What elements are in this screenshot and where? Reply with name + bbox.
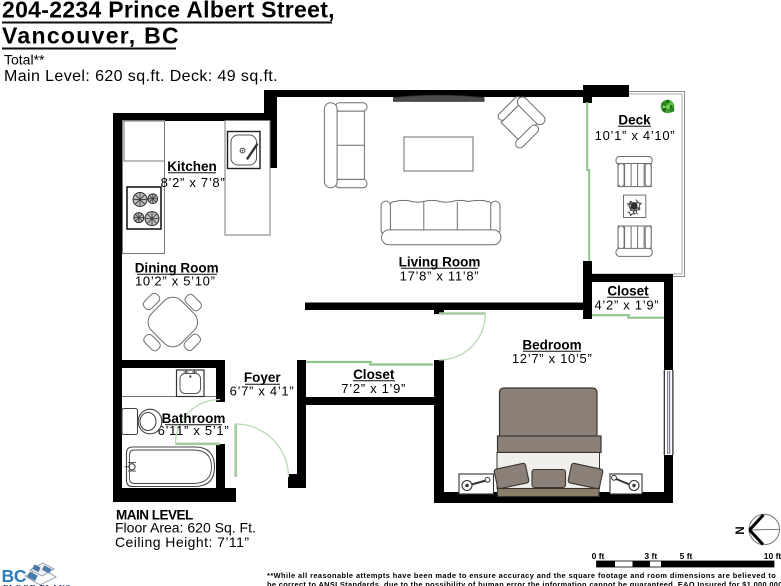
svg-text:Main Level: 620 sq.ft. Deck: Main Level: 620 sq.ft. Deck: 49 sq.ft. [4,68,278,85]
svg-text:3 ft: 3 ft [644,551,657,561]
svg-text:Vancouver, BC: Vancouver, BC [2,23,180,49]
svg-text:12’7” x 10’5”: 12’7” x 10’5” [512,351,593,366]
svg-text:10 ft: 10 ft [764,551,781,561]
svg-text:7’2” x 1’9”: 7’2” x 1’9” [341,381,406,396]
svg-text:10’1” x 4’10”: 10’1” x 4’10” [595,128,676,143]
svg-text:Deck: Deck [618,113,651,128]
svg-text:10’2” x 5’10”: 10’2” x 5’10” [135,274,216,289]
svg-text:17’8” x 11’8”: 17’8” x 11’8” [400,269,480,284]
svg-text:Living Room: Living Room [399,255,481,270]
svg-text:Total**: Total** [4,52,45,68]
svg-text:**While all reasonable attempt: **While all reasonable attempts have bee… [267,571,776,580]
svg-text:be correct to ANSI Standards,: be correct to ANSI Standards, due to the… [267,580,781,586]
svg-text:0 ft: 0 ft [592,551,605,561]
svg-text:FLOOR PLANS: FLOOR PLANS [3,583,71,586]
svg-text:5 ft: 5 ft [680,551,693,561]
svg-text:6’7” x 4’1”: 6’7” x 4’1” [230,384,295,399]
svg-text:Closet: Closet [353,367,395,382]
svg-text:Ceiling Height: 7’11”: Ceiling Height: 7’11” [115,534,249,550]
svg-text:N: N [735,526,747,534]
svg-text:8’2” x 7’8”: 8’2” x 7’8” [161,175,226,190]
svg-text:Kitchen: Kitchen [167,159,217,174]
svg-text:Closet: Closet [607,284,649,299]
svg-text:6’11” x 5’1”: 6’11” x 5’1” [158,423,230,438]
svg-text:204-2234 Prince Albert Street,: 204-2234 Prince Albert Street, [2,0,335,23]
svg-text:4’2” x 1’9”: 4’2” x 1’9” [595,298,660,313]
